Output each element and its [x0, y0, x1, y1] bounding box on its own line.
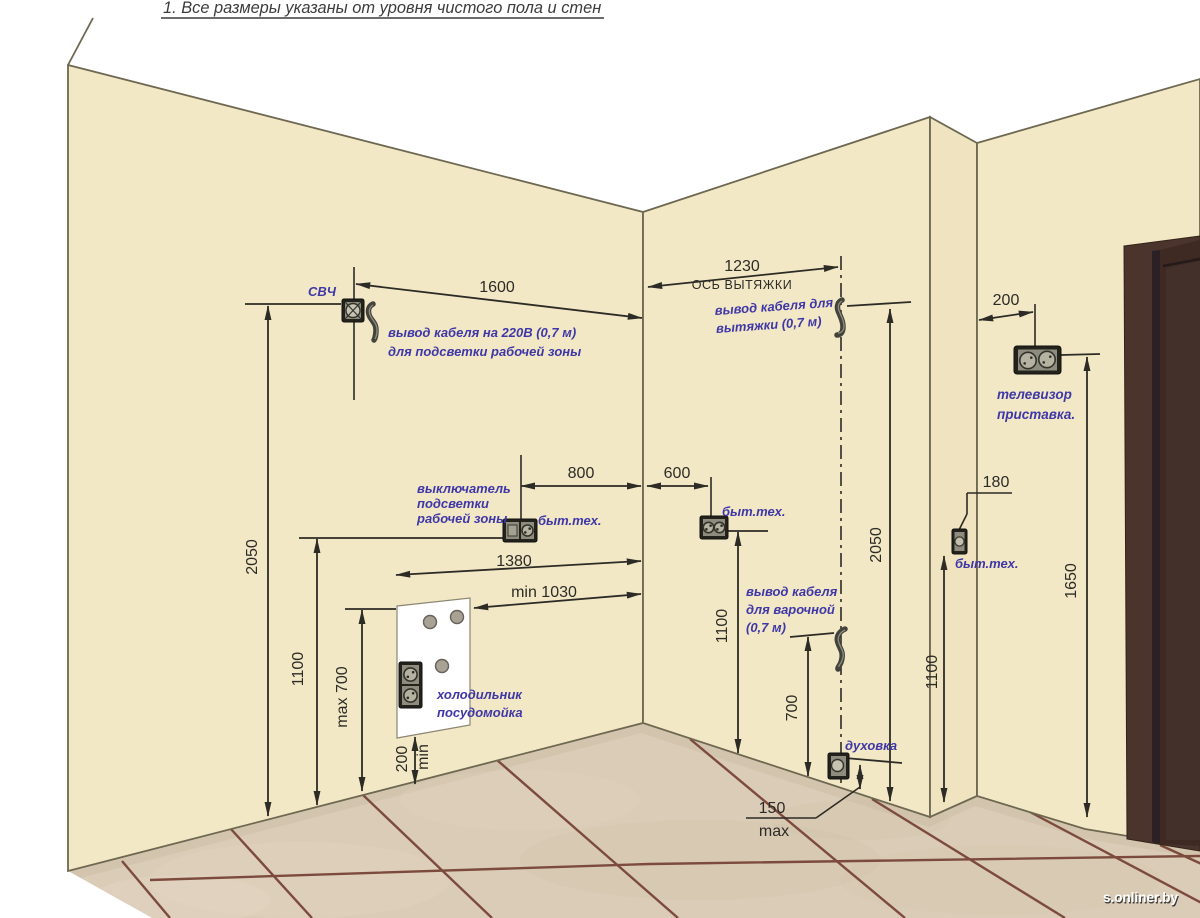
svg-text:600: 600 [664, 465, 691, 482]
svg-text:700: 700 [784, 695, 801, 722]
svg-text:СВЧ: СВЧ [308, 284, 337, 299]
svg-text:приставка.: приставка. [997, 407, 1075, 422]
svg-text:2050: 2050 [244, 539, 261, 575]
svg-text:180: 180 [983, 474, 1010, 491]
svg-text:ОСЬ ВЫТЯЖКИ: ОСЬ ВЫТЯЖКИ [692, 278, 793, 292]
svg-text:посудомойка: посудомойка [437, 705, 523, 720]
svg-text:max 700: max 700 [334, 666, 351, 727]
svg-text:max: max [759, 823, 789, 840]
svg-text:1600: 1600 [479, 279, 515, 296]
svg-text:быт.тех.: быт.тех. [722, 504, 785, 519]
svg-text:для подсветки рабочей зоны: для подсветки рабочей зоны [388, 344, 581, 359]
svg-text:телевизор: телевизор [997, 387, 1072, 402]
svg-text:200: 200 [394, 746, 411, 773]
svg-text:150: 150 [759, 800, 786, 817]
svg-text:s.onliner.by: s.onliner.by [1103, 890, 1179, 905]
svg-text:1100: 1100 [714, 609, 731, 644]
svg-text:1380: 1380 [496, 553, 532, 570]
svg-text:холодильник: холодильник [436, 687, 523, 702]
svg-text:1. Все размеры указаны от уров: 1. Все размеры указаны от уровня чистого… [163, 0, 601, 17]
svg-text:min 1030: min 1030 [511, 584, 577, 601]
svg-text:выключатель: выключатель [417, 481, 511, 496]
svg-text:1100: 1100 [290, 652, 307, 687]
svg-text:рабочей зоны: рабочей зоны [416, 511, 507, 526]
svg-text:вывод кабеля: вывод кабеля [746, 584, 838, 599]
svg-text:быт.тех.: быт.тех. [538, 513, 601, 528]
svg-text:1650: 1650 [1063, 563, 1080, 599]
svg-text:подсветки: подсветки [417, 496, 489, 511]
svg-text:вывод кабеля на 220В (0,7 м): вывод кабеля на 220В (0,7 м) [388, 325, 576, 340]
svg-text:(0,7 м): (0,7 м) [746, 620, 786, 635]
svg-text:800: 800 [568, 465, 595, 482]
svg-text:1100: 1100 [924, 655, 941, 690]
svg-text:для варочной: для варочной [746, 602, 835, 617]
svg-text:духовка: духовка [845, 738, 897, 753]
svg-text:быт.тех.: быт.тех. [955, 556, 1018, 571]
svg-text:200: 200 [993, 292, 1020, 309]
svg-text:2050: 2050 [868, 527, 885, 563]
svg-text:1230: 1230 [724, 258, 760, 275]
svg-text:min: min [415, 744, 432, 770]
